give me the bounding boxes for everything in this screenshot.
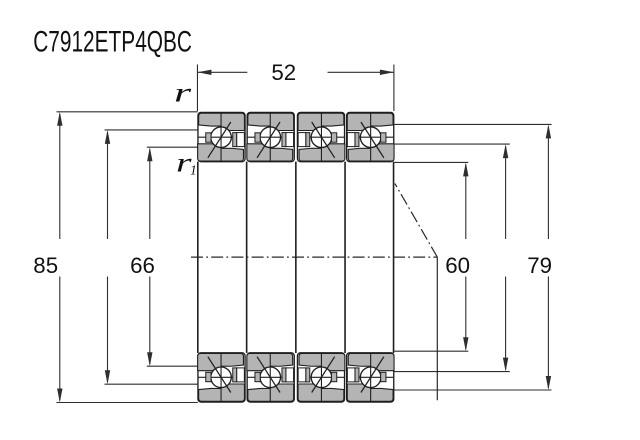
svg-text:60: 60 [445,253,470,278]
svg-text:r: r [174,77,192,108]
svg-text:C7912ETP4QBC: C7912ETP4QBC [33,26,192,59]
svg-text:85: 85 [33,253,58,278]
svg-text:52: 52 [271,60,296,85]
svg-text:66: 66 [130,253,155,278]
svg-text:79: 79 [527,253,552,278]
svg-text:1: 1 [190,162,197,177]
